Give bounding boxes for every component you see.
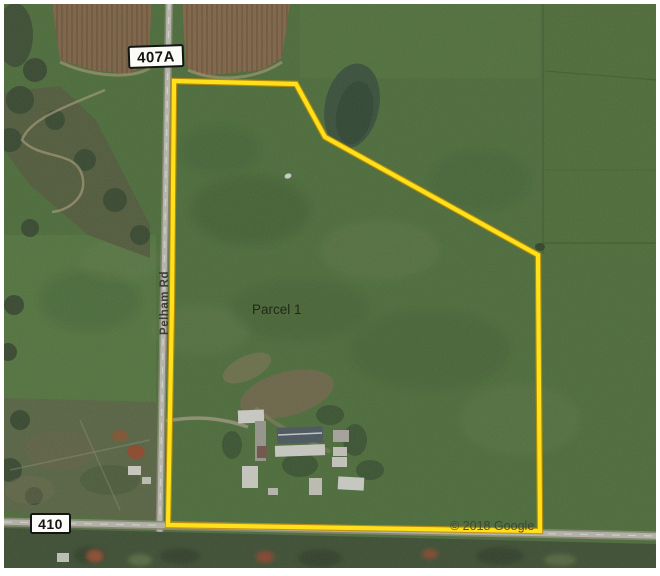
route-sign-410: 410: [31, 514, 70, 533]
scanned-map-page: Parcel 1 © 2018 Google Pelham Rd 407A 41…: [0, 0, 660, 576]
google-attribution: © 2018 Google: [450, 519, 534, 533]
route-sign-410-label: 410: [38, 516, 63, 532]
road-name-label: Pelham Rd: [159, 271, 171, 335]
aerial-photo: Parcel 1 © 2018 Google Pelham Rd 407A 41…: [0, 0, 660, 576]
grain-light: [4, 3, 657, 568]
parcel-label: Parcel 1: [252, 302, 302, 317]
route-sign-407a: 407A: [129, 45, 184, 68]
route-sign-407a-label: 407A: [137, 48, 175, 66]
